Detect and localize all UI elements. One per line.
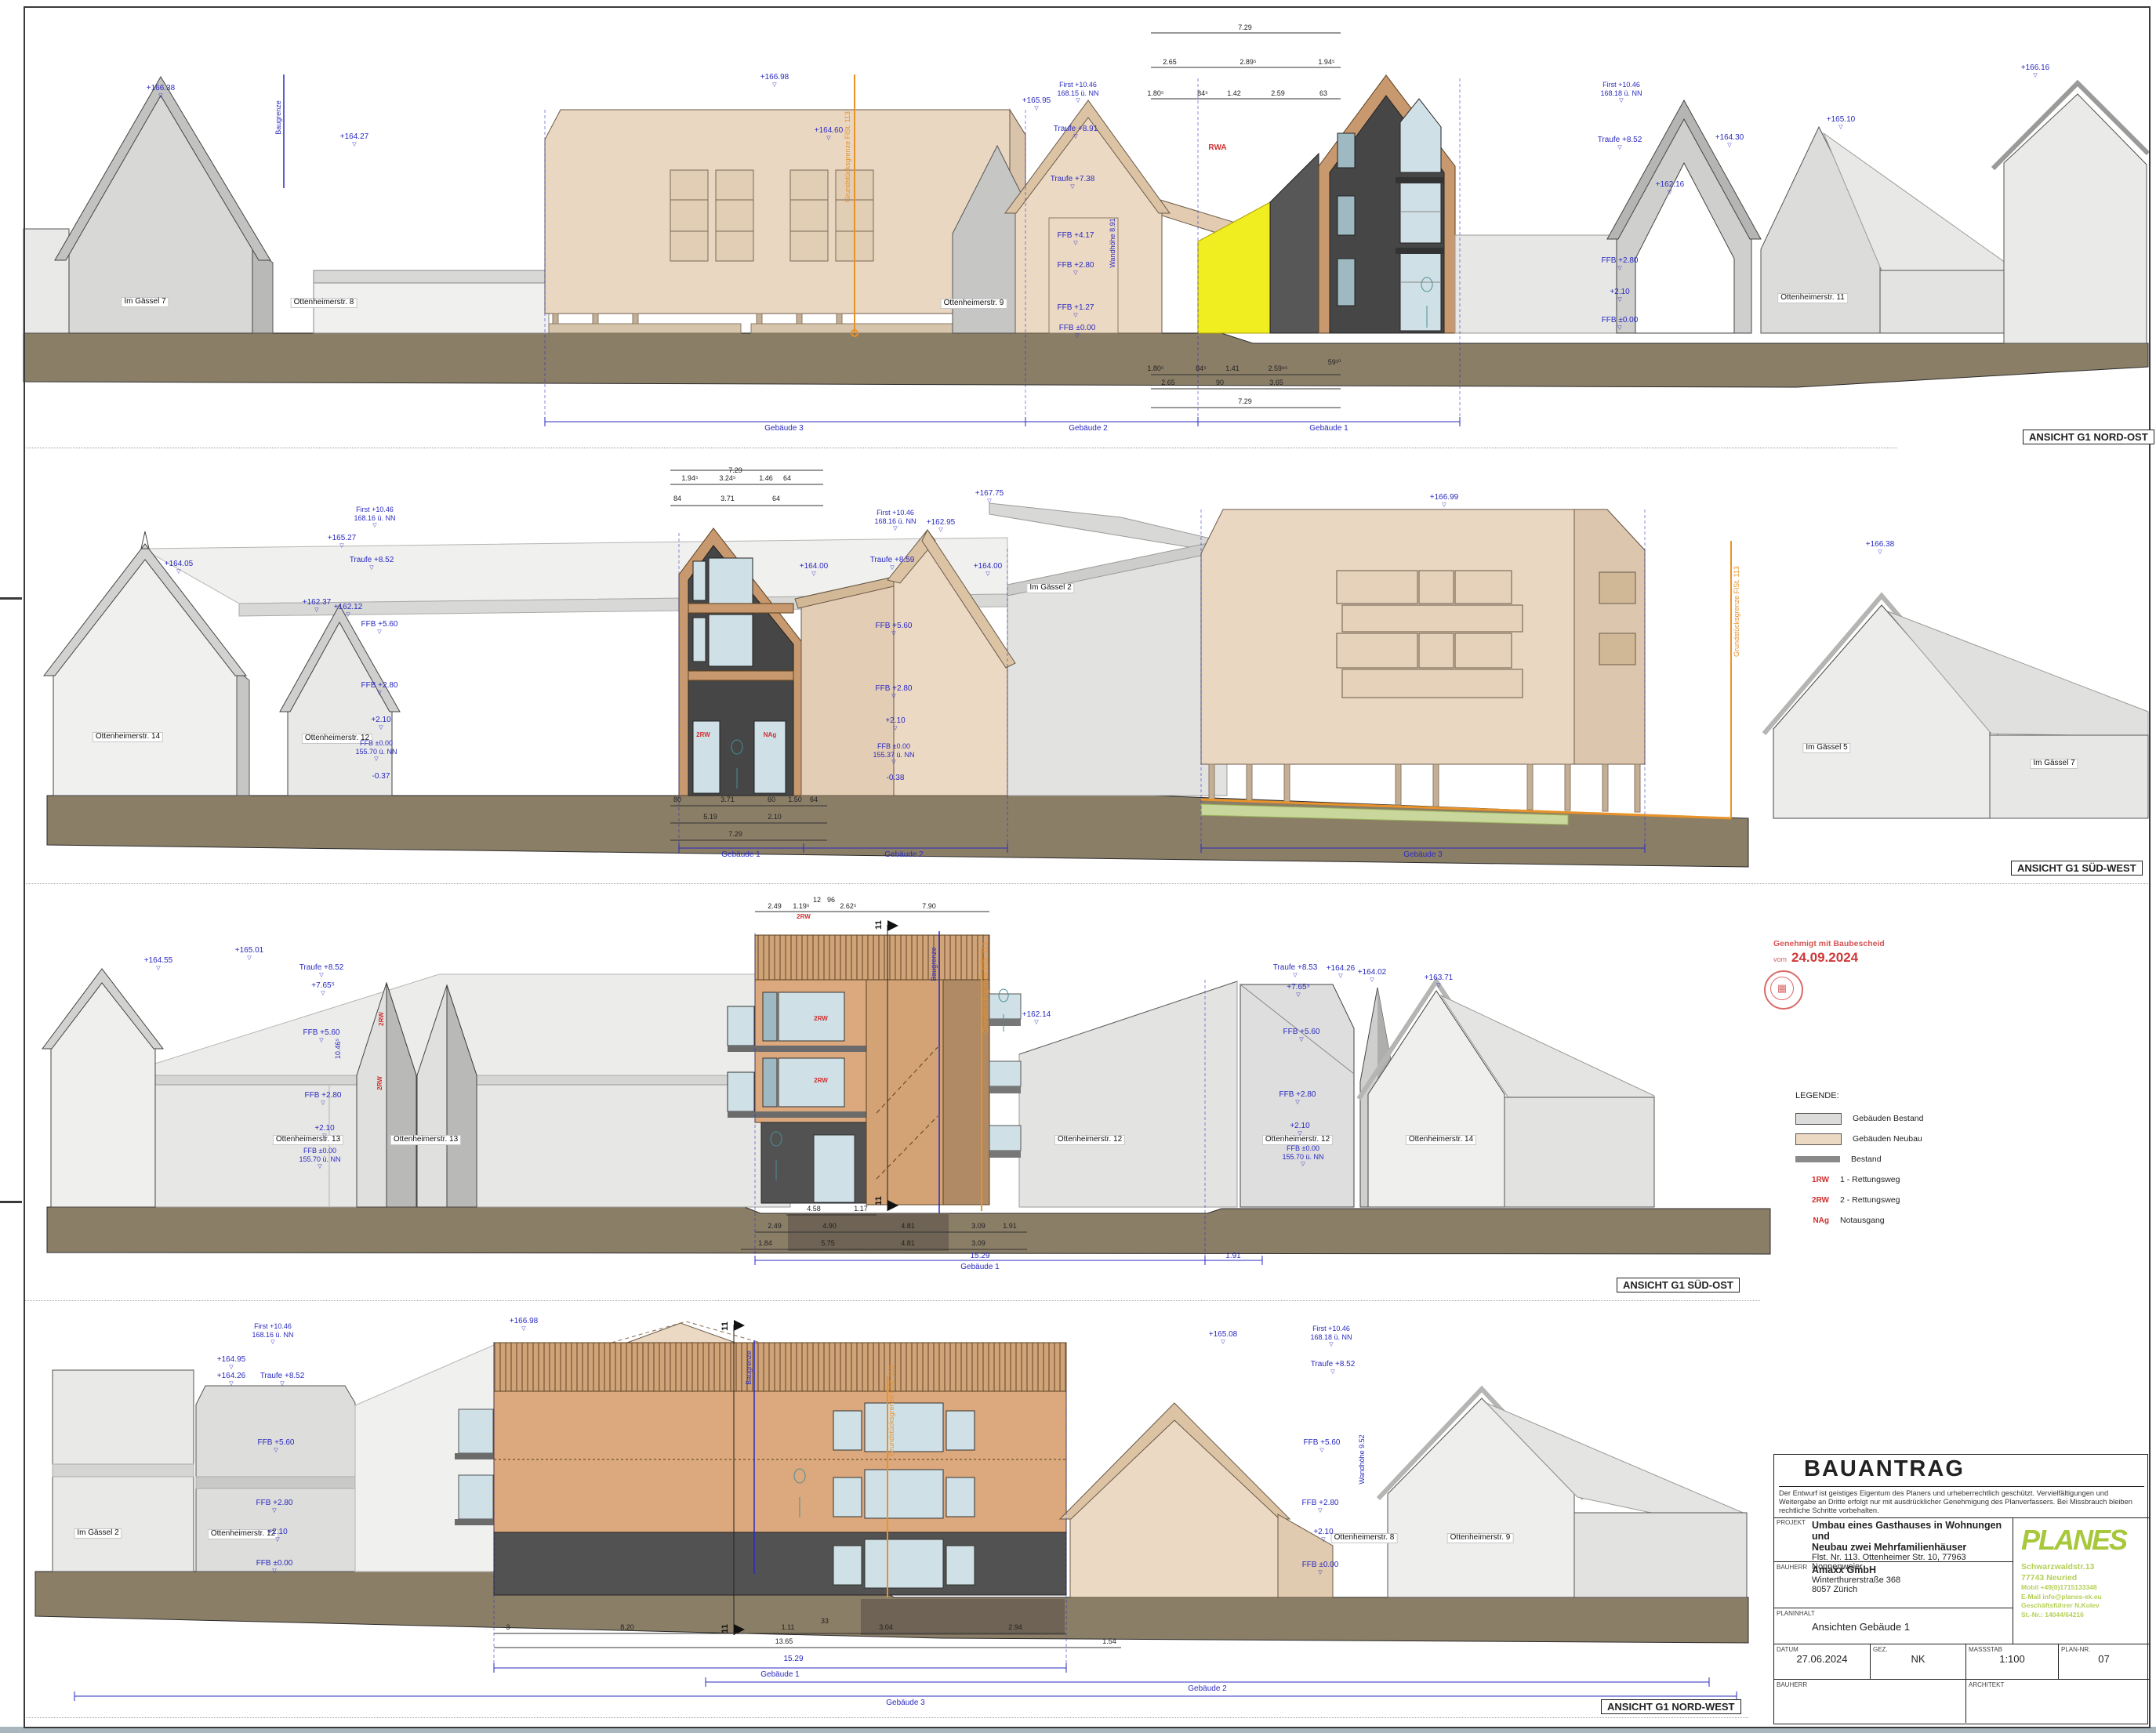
height-marker: +166.98 — [510, 1318, 538, 1331]
dim-label: 1.19⁵ — [793, 903, 809, 911]
height-marker: Traufe +8.52 — [350, 557, 394, 570]
building-gebaeude-1b — [494, 1343, 1066, 1391]
legend: LEGENDE: Gebäuden Bestand Gebäuden Neuba… — [1795, 1091, 1924, 1231]
building-span-label: Gebäude 2 — [884, 851, 924, 860]
height-marker: 168.18 ü. NN — [1600, 90, 1642, 103]
height-marker: Traufe +8.91 — [1054, 125, 1098, 139]
legend-item: Gebäuden Neubau — [1795, 1129, 1924, 1149]
building-gebaeude-2 — [1015, 114, 1162, 333]
street-label: Im Gässel 2 — [74, 1528, 122, 1539]
dim-label: 1.84 — [758, 1240, 772, 1248]
plan-sheet: ANSICHT G1 NORD-OST ANSICHT G1 SÜD-WEST … — [0, 0, 2156, 1733]
street-label: Im Gässel 2 — [1026, 583, 1074, 593]
height-marker: Traufe +8.52 — [1311, 1361, 1356, 1374]
height-marker: FFB +2.80 — [1279, 1091, 1316, 1104]
height-marker: +2.10 — [314, 1125, 334, 1138]
height-marker: +7.65⁵ — [311, 982, 334, 995]
projekt-row: PROJEKT Umbau eines Gasthauses in Wohnun… — [1774, 1517, 2013, 1561]
section-marker: 11 — [875, 1196, 884, 1205]
height-marker: First +10.46 — [1059, 82, 1097, 89]
dim-label: 5.19 — [703, 814, 717, 821]
property-line-label: Grundstücksgrenze FlSt. 113 — [888, 1365, 896, 1456]
bauherr-row: BAUHERR Amaxx GmbH Winterthurerstraße 36… — [1774, 1562, 2013, 1608]
height-marker: +166.99 — [1430, 494, 1458, 507]
dim-label: 64 — [783, 475, 791, 483]
dim-label: 1.46 — [759, 475, 773, 483]
dim-label: 3.65 — [1269, 379, 1283, 387]
building-gebaeude-2b — [1070, 1412, 1278, 1597]
dim-label: 3.09 — [971, 1223, 985, 1231]
dim-label: 1.94⁵ — [681, 475, 698, 483]
elevation-sued-west — [44, 470, 2148, 867]
gez-cell: GEZ. NK — [1870, 1644, 1965, 1679]
dim-label: 15.29 — [783, 1655, 803, 1664]
building-span-label: Gebäude 1 — [721, 851, 760, 860]
height-marker: +166.16 — [2021, 64, 2049, 78]
stamp-prefix: vom — [1773, 955, 1787, 963]
rescue-route-tag: 2RW — [797, 914, 811, 920]
height-marker: +164.05 — [165, 560, 193, 574]
architekt-cell: ARCHITEKT — [1965, 1680, 2149, 1723]
official-seal-icon: ▦ — [1764, 970, 1803, 1010]
legend-item: NAg Notausgang — [1795, 1210, 1924, 1231]
bestand-bar-icon — [1795, 1156, 1840, 1162]
massstab-cell: MASSSTAB 1:100 — [1965, 1644, 2058, 1679]
height-marker: +166.98 — [760, 74, 789, 87]
height-marker: +165.27 — [328, 535, 356, 548]
street-label: Im Gässel 5 — [1802, 743, 1850, 753]
dim-label: 3.09 — [971, 1240, 985, 1248]
height-marker: +162.16 — [1656, 181, 1684, 194]
height-marker: +165.95 — [1022, 97, 1051, 111]
dim-label: 2.65 — [1161, 379, 1175, 387]
rwa-note: RWA — [1208, 144, 1226, 153]
dim-label: 13.65 — [775, 1638, 793, 1646]
dim-label: 84⁵ — [1197, 90, 1208, 98]
height-marker: +2.10 — [885, 717, 905, 731]
bestand-swatch-icon — [1795, 1113, 1842, 1125]
legend-item: 1RW 1 - Rettungsweg — [1795, 1169, 1924, 1190]
height-marker: +166.38 — [1866, 541, 1894, 554]
copyright-note: Der Entwurf ist geistiges Eigentum des P… — [1779, 1486, 2144, 1515]
dim-label: 2.62⁵ — [840, 903, 856, 911]
dim-label: 4.81 — [901, 1240, 915, 1248]
height-marker: FFB ±0.00 — [360, 740, 393, 748]
height-marker: 168.16 ü. NN — [874, 518, 916, 531]
rescue-route-tag: 2RW — [379, 1012, 385, 1026]
dim-label: 2.59⁹⁵ — [1268, 365, 1287, 373]
height-marker: FFB +2.80 — [256, 1499, 293, 1513]
rescue-route-tag: 2RW — [814, 1078, 828, 1084]
height-marker: First +10.46 — [254, 1323, 292, 1331]
planinhalt-row: PLANINHALT Ansichten Gebäude 1 — [1774, 1608, 2013, 1644]
height-marker: +167.75 — [975, 490, 1004, 503]
approval-stamp: Genehmigt mit Baubescheid vom 24.09.2024 — [1773, 939, 1885, 966]
dim-label: 7.29 — [728, 831, 742, 839]
section-marker: 11 — [875, 920, 884, 930]
height-marker: FFB +5.60 — [258, 1439, 295, 1452]
height-marker: +2.10 — [267, 1528, 287, 1542]
dim-label: 1.80⁵ — [1147, 90, 1163, 98]
title-block: BAUANTRAG Der Entwurf ist geistiges Eige… — [1773, 1454, 2148, 1724]
height-marker: Traufe +8.59 — [870, 557, 915, 570]
dim-label: 1.17 — [854, 1205, 868, 1213]
height-marker: FFB +4.17 — [1058, 232, 1094, 245]
property-line-label: Grundstücksgrenze FlSt. 113 — [844, 111, 852, 202]
wandhoehe-label: Wandhöhe 9.52 — [1359, 1434, 1367, 1484]
section-marker: 11 — [721, 1322, 731, 1331]
street-label: Ottenheimerstr. 14 — [93, 732, 163, 742]
height-marker: FFB +2.80 — [305, 1092, 342, 1105]
height-marker: +2.10 — [1313, 1528, 1333, 1542]
height-marker: +164.26 — [217, 1372, 245, 1386]
height-marker: +165.10 — [1827, 116, 1855, 129]
dim-label: 7.90 — [922, 903, 936, 911]
height-marker: 155.37 ü. NN — [873, 752, 914, 764]
height-marker: FFB +5.60 — [361, 621, 398, 634]
height-marker: 168.16 ü. NN — [252, 1332, 293, 1344]
building-im-gaessel-7b — [1990, 735, 2148, 818]
dim-label: 12 — [813, 897, 821, 905]
dim-label: 2.10 — [768, 814, 782, 821]
height-marker: +164.02 — [1358, 969, 1386, 982]
height-marker: +166.38 — [147, 85, 175, 98]
height-marker: FFB +2.80 — [876, 685, 913, 698]
height-marker: FFB ±0.00 — [877, 743, 910, 751]
height-marker: FFB ±0.00 — [1059, 324, 1096, 338]
height-marker: 168.15 ü. NN — [1057, 90, 1098, 103]
dim-label: 15.29 — [970, 1253, 989, 1261]
dim-label: 64 — [772, 495, 780, 503]
dim-label: 3 — [506, 1624, 510, 1632]
height-marker: +164.30 — [1715, 134, 1744, 147]
dim-label: 3.24⁵ — [719, 475, 735, 483]
building-span-label: Gebäude 3 — [1403, 851, 1443, 860]
logo-panel: PLANES Schwarzwaldstr.13 77743 Neuried M… — [2013, 1517, 2149, 1644]
dim-label: 60 — [768, 796, 775, 804]
height-marker: FFB +5.60 — [1304, 1439, 1341, 1452]
street-label: Ottenheimerstr. 8 — [291, 298, 358, 308]
height-marker: +162.14 — [1022, 1011, 1051, 1024]
building-im-gaessel-5 — [1773, 605, 1990, 818]
height-marker: FFB +5.60 — [1283, 1028, 1320, 1042]
height-marker: FFB ±0.00 — [1302, 1561, 1339, 1575]
neubau-swatch-icon — [1795, 1133, 1842, 1145]
legend-title: LEGENDE: — [1795, 1091, 1924, 1100]
stamp-text: Genehmigt mit Baubescheid — [1773, 939, 1885, 948]
building-span-label: Gebäude 1 — [1309, 425, 1348, 433]
dim-label: 2.59 — [1271, 90, 1285, 98]
height-marker: +2.10 — [371, 716, 390, 730]
street-label: Ottenheimerstr. 11 — [1777, 293, 1848, 303]
height-marker: +7.65⁵ — [1287, 984, 1309, 997]
height-marker: 155.70 ü. NN — [355, 749, 397, 761]
street-label: Ottenheimerstr. 9 — [941, 299, 1007, 309]
dim-label: 1.54 — [1102, 1638, 1116, 1646]
height-marker: Traufe +8.52 — [299, 964, 344, 977]
street-label: Ottenheimerstr. 13 — [390, 1135, 461, 1145]
dim-label: 33 — [821, 1618, 829, 1626]
property-line-label: Grundstücksgrenze FlSt. 113 — [982, 942, 990, 1033]
building-span-label: Gebäude 2 — [1069, 425, 1108, 433]
dim-label: 1.42 — [1227, 90, 1241, 98]
height-marker: Traufe +8.52 — [1598, 136, 1642, 150]
elevation-title-nord-ost: ANSICHT G1 NORD-OST — [2023, 430, 2154, 444]
height-marker: 155.70 ü. NN — [299, 1156, 340, 1169]
rescue-route-tag: 2RW — [814, 1016, 828, 1022]
dim-label: 2.94 — [1008, 1624, 1022, 1632]
rescue-route-tag: 2RW — [696, 732, 710, 738]
street-label: Ottenheimerstr. 12 — [1262, 1135, 1333, 1145]
height-marker: +2.10 — [1290, 1122, 1309, 1136]
dim-label: 1.11 — [782, 1624, 795, 1632]
height-marker: +164.27 — [340, 133, 368, 147]
dim-label: 96 — [827, 897, 835, 905]
dim-label: 2.49 — [768, 903, 782, 911]
height-marker: FFB ±0.00 — [256, 1560, 293, 1573]
dim-label: 3.04 — [879, 1624, 893, 1632]
height-marker: Traufe +8.52 — [260, 1372, 305, 1386]
height-marker: FFB +1.27 — [1058, 304, 1094, 317]
height-marker: 168.16 ü. NN — [354, 515, 395, 528]
street-label: Ottenheimerstr. 14 — [1406, 1135, 1476, 1145]
baugrenze-label: Baugrenze — [746, 1351, 753, 1385]
height-marker: Traufe +7.38 — [1051, 176, 1095, 189]
height-marker: +165.08 — [1209, 1331, 1237, 1344]
dim-label: 1.80⁵ — [1147, 365, 1163, 373]
street-label: Ottenheimerstr. 12 — [1054, 1135, 1125, 1145]
dim-label: 4.58 — [807, 1205, 821, 1213]
plannr-cell: PLAN-NR. 07 — [2058, 1644, 2149, 1679]
dim-label: 1.91 — [1003, 1223, 1017, 1231]
dim-label: 4.90 — [822, 1223, 837, 1231]
baugrenze-label: Baugrenze — [931, 947, 938, 981]
dim-label: 64 — [810, 796, 818, 804]
height-marker: 168.18 ü. NN — [1310, 1334, 1352, 1347]
dim-label: 80 — [673, 796, 681, 804]
section-marker: 11 — [721, 1624, 731, 1633]
dim-label: 1.41 — [1225, 365, 1240, 373]
bauherr2-cell: BAUHERR — [1774, 1680, 1965, 1723]
height-marker: Traufe +8.53 — [1273, 964, 1318, 977]
height-marker: +162.12 — [334, 604, 362, 617]
sheet-heading: BAUANTRAG — [1804, 1456, 1965, 1482]
building-ottenheimerstr-14 — [53, 553, 237, 796]
height-marker: FFB +2.80 — [1302, 1499, 1339, 1513]
height-marker: +164.60 — [815, 127, 843, 140]
building-span-label: Gebäude 1 — [760, 1671, 800, 1680]
dim-label: 63 — [1319, 90, 1327, 98]
height-marker: 155.70 ü. NN — [1282, 1154, 1323, 1166]
height-marker: FFB +2.80 — [1058, 262, 1094, 275]
height-marker: +164.00 — [974, 563, 1002, 576]
dim-label: 84⁵ — [1196, 365, 1207, 373]
dim-label: 1.91 — [1225, 1253, 1240, 1261]
dim-label: 2.65 — [1163, 59, 1177, 67]
dim-label: 90 — [1216, 379, 1224, 387]
dim-label: 1.50 — [788, 796, 802, 804]
legend-item: Gebäuden Bestand — [1795, 1108, 1924, 1129]
street-label: Ottenheimerstr. 9 — [1447, 1533, 1514, 1543]
planes-logo: PLANES — [2021, 1524, 2126, 1557]
dim-label: 3.71 — [720, 796, 735, 804]
dim-label: 5.75 — [821, 1240, 835, 1248]
building-span-label: Gebäude 1 — [960, 1263, 1000, 1272]
height-marker: +163.71 — [1425, 974, 1453, 988]
height-marker: FFB +5.60 — [876, 622, 913, 636]
stamp-date: 24.09.2024 — [1791, 950, 1858, 966]
dim-label: 8.20 — [620, 1624, 634, 1632]
dim-label: 59¹⁰ — [1328, 359, 1341, 367]
height-marker: +164.95 — [217, 1356, 245, 1369]
height-marker: +164.26 — [1327, 965, 1355, 978]
height-marker: +164.55 — [144, 957, 172, 970]
emergency-exit-tag: NAg — [764, 732, 776, 738]
height-marker: +2.10 — [1610, 288, 1629, 302]
building-span-label: Gebäude 3 — [764, 425, 804, 433]
building-span-label: Gebäude 3 — [886, 1699, 925, 1708]
height-marker: First +10.46 — [1602, 82, 1640, 89]
dim-label: 10.46⁵ — [335, 1039, 343, 1059]
rescue-route-tag: 2RW — [377, 1076, 383, 1090]
street-label: Im Gässel 7 — [2030, 759, 2078, 769]
height-marker: First +10.46 — [1312, 1325, 1350, 1333]
height-marker: FFB +2.80 — [361, 682, 398, 695]
height-marker: +164.00 — [800, 563, 828, 576]
elevation-title-sued-west: ANSICHT G1 SÜD-WEST — [2011, 861, 2143, 876]
height-marker: -0.37 — [372, 773, 390, 781]
height-marker: FFB ±0.00 — [1287, 1145, 1319, 1153]
height-marker: FFB ±0.00 — [303, 1147, 336, 1155]
legend-item: Bestand — [1795, 1149, 1924, 1169]
building-span-label: Gebäude 2 — [1188, 1685, 1227, 1694]
street-label: Im Gässel 7 — [121, 297, 169, 307]
baugrenze-label: Baugrenze — [275, 100, 283, 135]
datum-cell: DATUM 27.06.2024 — [1774, 1644, 1870, 1679]
dim-label: 4.81 — [901, 1223, 915, 1231]
dim-label: 7.29 — [1238, 398, 1252, 406]
building-gebaeude-1-slats — [755, 935, 989, 980]
property-line-label: Grundstücksgrenze FlSt. 113 — [1733, 566, 1741, 657]
height-marker: -0.38 — [887, 774, 905, 783]
dim-label: 1.94⁵ — [1318, 59, 1334, 67]
dim-label: 2.89⁵ — [1240, 59, 1256, 67]
height-marker: +165.01 — [235, 947, 263, 960]
dim-label: 3.71 — [720, 495, 735, 503]
height-marker: +162.37 — [303, 599, 331, 612]
building-ottenheimerstr-12 — [288, 615, 392, 796]
elevation-title-sued-ost: ANSICHT G1 SÜD-OST — [1617, 1278, 1740, 1292]
height-marker: +162.95 — [927, 519, 955, 532]
dim-label: 7.29 — [1238, 24, 1252, 32]
legend-item: 2RW 2 - Rettungsweg — [1795, 1190, 1924, 1210]
height-marker: FFB +2.80 — [1602, 257, 1639, 270]
height-marker: First +10.46 — [877, 509, 914, 517]
height-marker: FFB ±0.00 — [1602, 317, 1639, 330]
elevation-title-nord-west: ANSICHT G1 NORD-WEST — [1601, 1699, 1741, 1714]
dim-label: 84 — [673, 495, 681, 503]
wandhoehe-label: Wandhöhe 8.91 — [1109, 218, 1117, 267]
height-marker: First +10.46 — [356, 506, 394, 514]
dim-label: 2.49 — [768, 1223, 782, 1231]
street-label: Ottenheimerstr. 8 — [1331, 1533, 1398, 1543]
